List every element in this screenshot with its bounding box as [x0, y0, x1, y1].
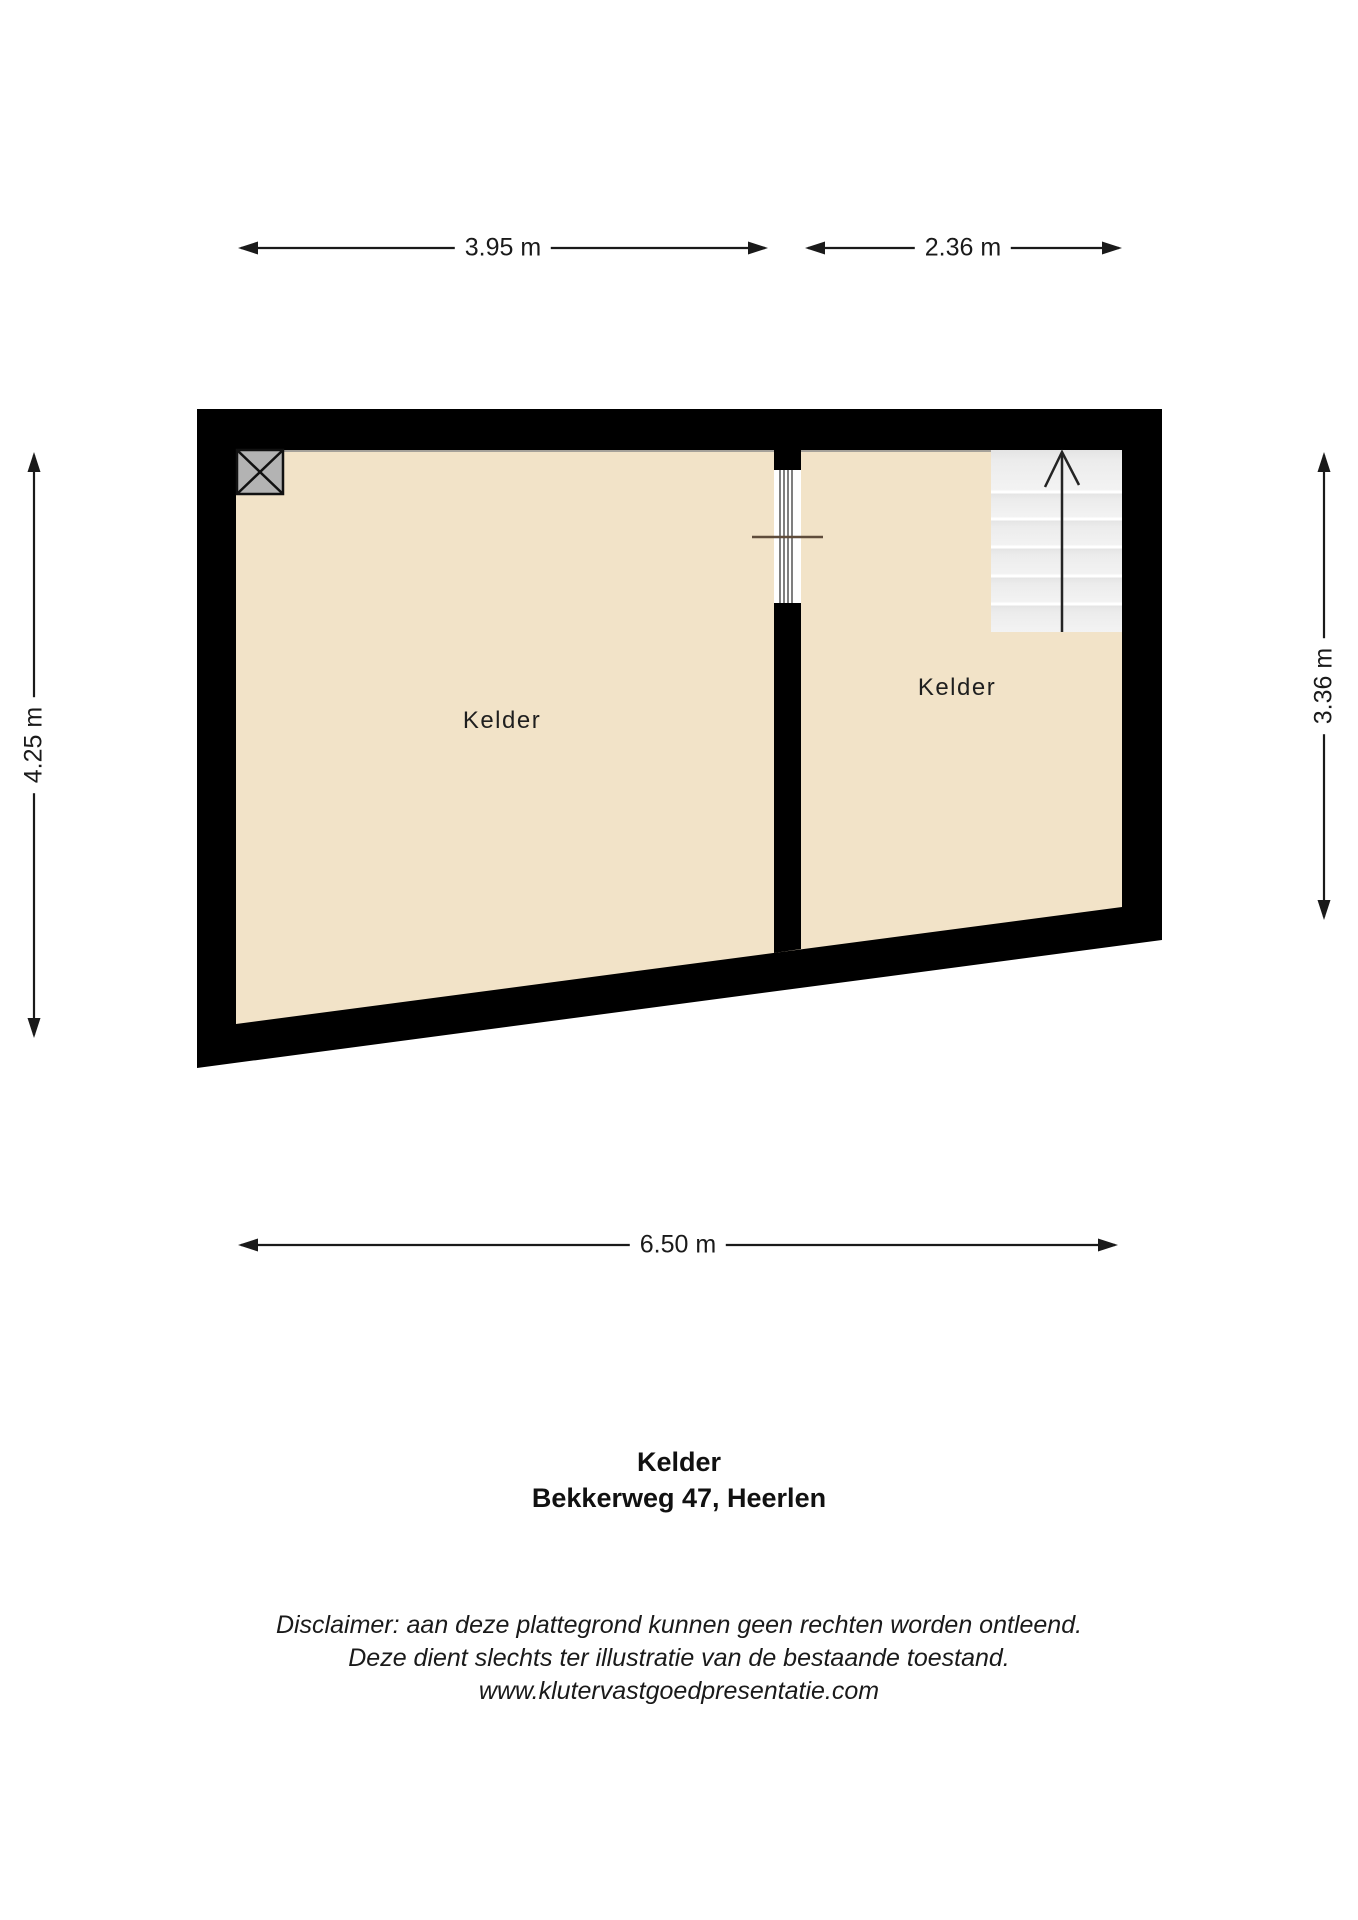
- dimension-label-bottom: 6.50 m: [630, 1230, 726, 1261]
- disclaimer-line-2: Deze dient slechts ter illustratie van d…: [0, 1642, 1358, 1675]
- plan-title-address: Bekkerweg 47, Heerlen: [0, 1480, 1358, 1516]
- disclaimer-line-1: Disclaimer: aan deze plattegrond kunnen …: [0, 1609, 1358, 1642]
- disclaimer: Disclaimer: aan deze plattegrond kunnen …: [0, 1609, 1358, 1708]
- staircase: [991, 450, 1122, 632]
- floor-plan-page: 3.95 m 2.36 m 6.50 m 4.25 m 3.36 m Kelde…: [0, 0, 1358, 1920]
- disclaimer-line-3: www.klutervastgoedpresentatie.com: [0, 1675, 1358, 1708]
- stair-tread: [991, 450, 1122, 491]
- chimney-shaft: [237, 450, 283, 494]
- room-label-right-kelder: Kelder: [918, 674, 996, 702]
- stair-tread: [991, 521, 1122, 546]
- dimension-label-left: 4.25 m: [19, 697, 50, 793]
- plan-title: Kelder Bekkerweg 47, Heerlen: [0, 1444, 1358, 1516]
- stair-tread: [991, 606, 1122, 633]
- room-label-left-kelder: Kelder: [463, 707, 541, 735]
- stair-tread: [991, 549, 1122, 575]
- dimension-label-right: 3.36 m: [1309, 638, 1340, 734]
- plan-title-room: Kelder: [0, 1444, 1358, 1480]
- dimension-label-top-right: 2.36 m: [915, 233, 1011, 264]
- stair-tread: [991, 578, 1122, 603]
- dimension-label-top-left: 3.95 m: [455, 233, 551, 264]
- stair-tread: [991, 494, 1122, 518]
